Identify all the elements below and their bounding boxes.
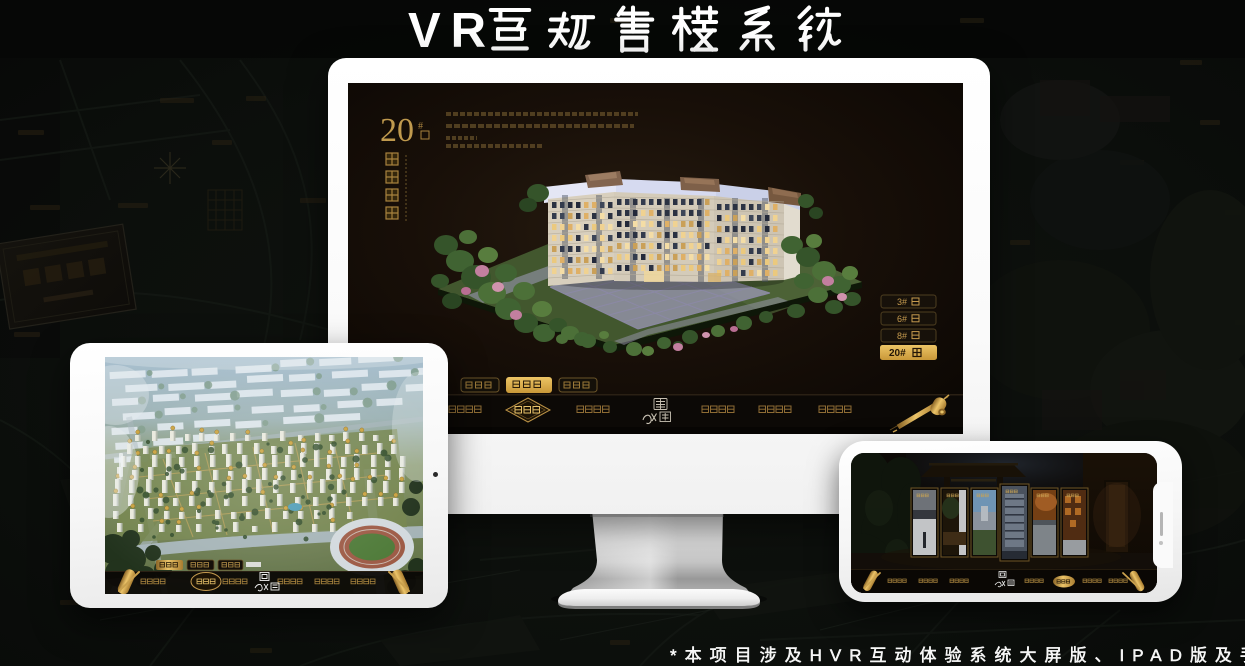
svg-text:20: 20 bbox=[380, 112, 414, 149]
svg-text:3#: 3# bbox=[897, 297, 907, 307]
svg-text:6#: 6# bbox=[897, 314, 907, 324]
svg-text:VR: VR bbox=[408, 4, 496, 58]
svg-text:8#: 8# bbox=[897, 331, 907, 341]
svg-text:#: # bbox=[418, 121, 423, 132]
svg-text:20#: 20# bbox=[889, 348, 906, 359]
